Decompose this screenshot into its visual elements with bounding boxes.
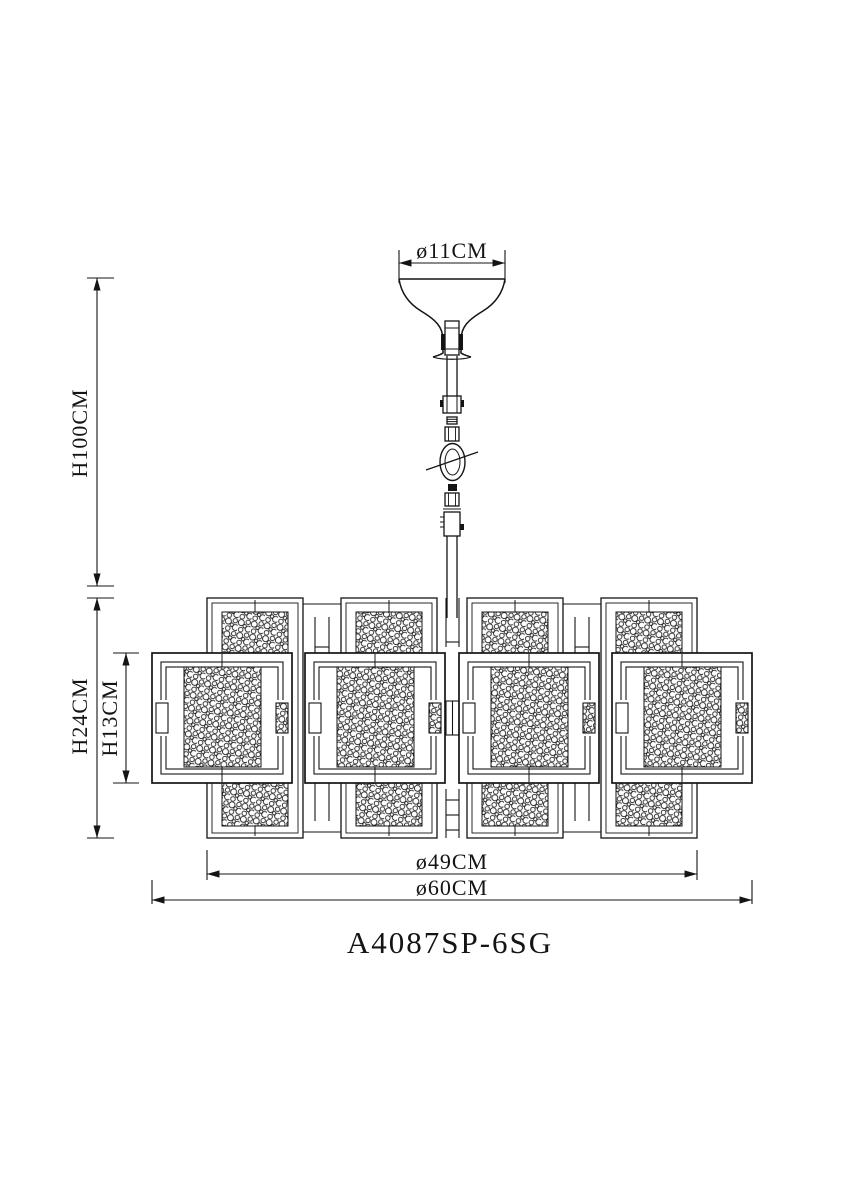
suspension-rod-drawing bbox=[426, 356, 478, 618]
model-number-label: A4087SP-6SG bbox=[347, 925, 553, 960]
front-panel-1 bbox=[152, 653, 292, 783]
front-panel-4 bbox=[612, 653, 752, 783]
overall-height-label: H100CM bbox=[67, 388, 92, 477]
inner-height-label: H13CM bbox=[97, 679, 122, 756]
front-panel-3 bbox=[459, 653, 599, 783]
technical-drawing-page: ø11CM H100CM H24CM H13CM ø49CM ø60CM A40… bbox=[0, 0, 848, 1200]
inner-diameter-label: ø49CM bbox=[416, 849, 488, 874]
body-front-panels-drawing bbox=[152, 653, 752, 783]
canopy-diameter-label: ø11CM bbox=[416, 238, 487, 263]
body-height-label: H24CM bbox=[67, 677, 92, 754]
overall-diameter-label: ø60CM bbox=[416, 875, 488, 900]
chandelier-dimension-drawing: ø11CM H100CM H24CM H13CM ø49CM ø60CM A40… bbox=[0, 0, 848, 1200]
front-panel-2 bbox=[305, 653, 445, 783]
ceiling-canopy-drawing bbox=[399, 279, 505, 359]
